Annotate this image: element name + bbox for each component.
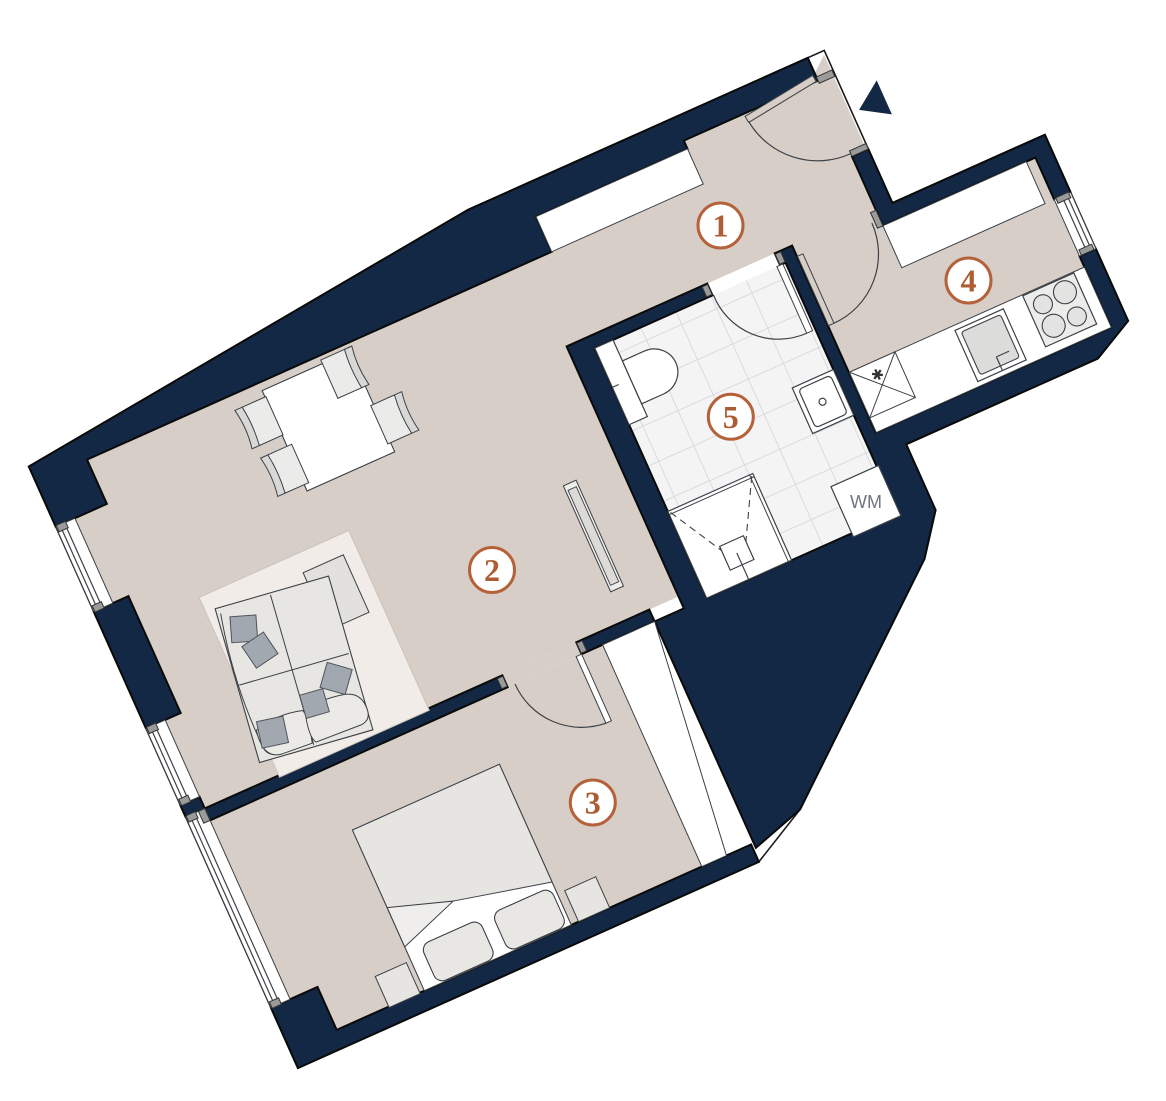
svg-text:4: 4 [961,263,977,299]
svg-text:3: 3 [585,785,601,821]
svg-text:5: 5 [723,399,739,435]
svg-text:1: 1 [713,208,729,244]
svg-text:WM: WM [850,492,882,512]
svg-text:2: 2 [484,552,500,588]
